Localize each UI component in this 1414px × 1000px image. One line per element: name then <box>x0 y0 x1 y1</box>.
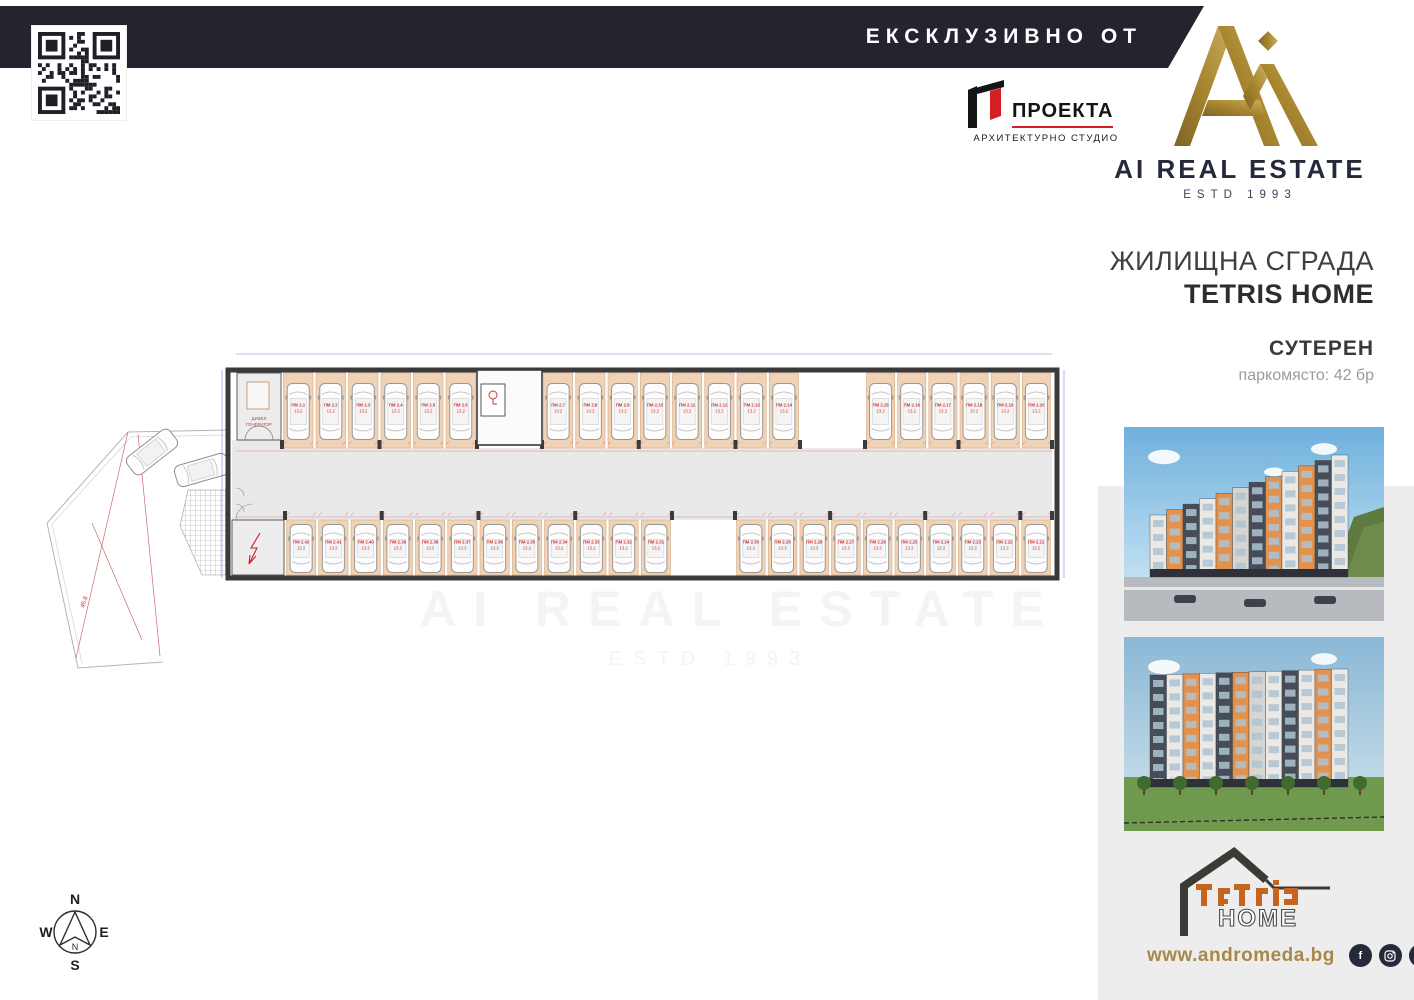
parking-space: ПМ 2.313.2 <box>349 373 379 448</box>
svg-text:13.2: 13.2 <box>652 546 661 551</box>
parking-space: ПМ 2.613.2 <box>446 373 476 448</box>
svg-text:13.2: 13.2 <box>523 546 532 551</box>
svg-text:ПМ 2.14: ПМ 2.14 <box>776 403 793 408</box>
parking-space: ПМ 2.3213.2 <box>609 513 638 576</box>
qr-code[interactable] <box>32 26 126 120</box>
svg-text:ПМ 2.22: ПМ 2.22 <box>996 540 1013 545</box>
svg-text:ПМ 2.38: ПМ 2.38 <box>422 540 439 545</box>
svg-text:13.2: 13.2 <box>969 546 978 551</box>
svg-text:ПМ 2.1: ПМ 2.1 <box>291 403 305 408</box>
parking-space: ПМ 2.1613.2 <box>898 373 926 448</box>
svg-text:13.2: 13.2 <box>458 546 467 551</box>
svg-text:13.2: 13.2 <box>939 409 948 414</box>
building-type: ЖИЛИЩНА СГРАДА <box>1110 246 1374 277</box>
architect-logo: ПРОЕКТА АРХИТЕКТУРНО СТУДИО <box>966 78 1126 144</box>
footer-links: www.andromeda.bg f in <box>1147 944 1387 967</box>
parking-space: ПМ 2.1213.2 <box>705 373 734 448</box>
parking-space: ПМ 2.3313.2 <box>573 511 606 575</box>
svg-text:13.2: 13.2 <box>618 409 627 414</box>
svg-text:ПМ 2.33: ПМ 2.33 <box>583 540 600 545</box>
parking-space: ПМ 2.1813.2 <box>957 373 989 449</box>
svg-text:ПМ 2.18: ПМ 2.18 <box>966 403 983 408</box>
stair-core <box>477 370 542 445</box>
parking-space: ПМ 2.213.2 <box>316 373 346 448</box>
tetris-letters <box>1196 880 1298 906</box>
svg-text:ПМ 2.16: ПМ 2.16 <box>904 403 921 408</box>
parking-space: ПМ 2.813.2 <box>576 373 605 448</box>
parking-space: ПМ 2.2113.2 <box>1018 511 1050 575</box>
svg-text:E: E <box>99 924 108 940</box>
svg-text:ПМ 2.17: ПМ 2.17 <box>935 403 952 408</box>
svg-text:13.2: 13.2 <box>587 546 596 551</box>
qr-code-icon <box>38 32 120 114</box>
svg-text:ПМ 2.9: ПМ 2.9 <box>616 403 630 408</box>
parking-space: ПМ 2.2013.2 <box>1022 373 1050 448</box>
svg-text:ПМ 2.15: ПМ 2.15 <box>872 403 889 408</box>
parking-space: ПМ 2.4213.2 <box>287 513 316 576</box>
svg-text:13.2: 13.2 <box>810 546 819 551</box>
svg-text:N: N <box>70 891 80 907</box>
svg-text:13.2: 13.2 <box>873 546 882 551</box>
svg-text:ПМ 2.13: ПМ 2.13 <box>744 403 761 408</box>
svg-text:ПМ 2.7: ПМ 2.7 <box>551 403 565 408</box>
svg-text:ПМ 2.23: ПМ 2.23 <box>965 540 982 545</box>
svg-text:13.2: 13.2 <box>780 409 789 414</box>
level-title: СУТЕРЕН паркомясто: 42 бр <box>1239 337 1374 385</box>
svg-text:13.2: 13.2 <box>1000 546 1009 551</box>
instagram-icon[interactable] <box>1379 944 1402 967</box>
tetris-home-word: HOME <box>1218 905 1298 932</box>
exclusive-label: ЕКСКЛУЗИВНО ОТ <box>866 25 1142 49</box>
parking-space: ПМ 2.3513.2 <box>512 513 541 576</box>
svg-text:13.2: 13.2 <box>876 409 885 414</box>
svg-text:13.2: 13.2 <box>619 546 628 551</box>
svg-text:ПМ 2.4: ПМ 2.4 <box>389 403 403 408</box>
svg-text:ПМ 2.10: ПМ 2.10 <box>647 403 664 408</box>
parking-space: ПМ 2.413.2 <box>378 373 411 449</box>
svg-text:ПМ 2.25: ПМ 2.25 <box>901 540 918 545</box>
parking-space: ПМ 2.4013.2 <box>351 513 380 576</box>
architect-name: ПРОЕКТА <box>1012 100 1113 128</box>
header-bar: ЕКСКЛУЗИВНО ОТ <box>0 6 1204 68</box>
svg-text:13.2: 13.2 <box>908 409 917 414</box>
parking-space: ПМ 2.3913.2 <box>380 511 413 575</box>
svg-text:ПМ 2.24: ПМ 2.24 <box>933 540 950 545</box>
generator-room: ДИЗЕЛГЕНЕРАТОР <box>237 373 281 440</box>
parking-space: ПМ 2.2613.2 <box>863 513 892 576</box>
svg-text:13.2: 13.2 <box>747 409 756 414</box>
compass-rose: N E S W N <box>36 890 114 974</box>
parking-space: ПМ 2.1413.2 <box>769 373 798 448</box>
svg-text:ПМ 2.30: ПМ 2.30 <box>743 540 760 545</box>
svg-text:13.2: 13.2 <box>1001 409 1010 414</box>
svg-text:ПМ 2.31: ПМ 2.31 <box>648 540 665 545</box>
brand-name: AI REAL ESTATE <box>1100 154 1380 185</box>
svg-text:ПМ 2.37: ПМ 2.37 <box>454 540 471 545</box>
facebook-icon[interactable]: f <box>1349 944 1372 967</box>
svg-text:13.2: 13.2 <box>937 546 946 551</box>
parking-space: ПМ 2.1713.2 <box>929 373 957 448</box>
svg-text:13.2: 13.2 <box>747 546 756 551</box>
svg-text:W: W <box>39 924 53 940</box>
svg-text:ДИЗЕЛ: ДИЗЕЛ <box>252 416 267 421</box>
svg-text:13.2: 13.2 <box>970 409 979 414</box>
level-name: СУТЕРЕН <box>1239 337 1374 361</box>
car-icon <box>124 427 180 478</box>
svg-text:13.2: 13.2 <box>1032 546 1041 551</box>
svg-text:ПМ 2.42: ПМ 2.42 <box>293 540 310 545</box>
parking-space: ПМ 2.3613.2 <box>477 511 510 575</box>
svg-text:13.2: 13.2 <box>329 546 338 551</box>
svg-text:13.2: 13.2 <box>457 409 466 414</box>
svg-text:ПМ 2.39: ПМ 2.39 <box>390 540 407 545</box>
svg-text:ПМ 2.36: ПМ 2.36 <box>487 540 504 545</box>
parking-space: ПМ 2.113.2 <box>284 373 314 448</box>
svg-text:ПМ 2.29: ПМ 2.29 <box>774 540 791 545</box>
svg-text:ПМ 2.21: ПМ 2.21 <box>1028 540 1045 545</box>
svg-text:13.2: 13.2 <box>361 546 370 551</box>
svg-text:ПМ 2.2: ПМ 2.2 <box>324 403 338 408</box>
site-outline: 45.8 <box>47 427 231 668</box>
svg-text:ПМ 2.20: ПМ 2.20 <box>1028 403 1045 408</box>
svg-text:ПМ 2.11: ПМ 2.11 <box>679 403 696 408</box>
svg-text:ПМ 2.28: ПМ 2.28 <box>806 540 823 545</box>
parking-space: ПМ 2.713.2 <box>544 373 573 448</box>
parking-space: ПМ 2.1013.2 <box>637 373 670 449</box>
svg-text:13.2: 13.2 <box>392 409 401 414</box>
website-link[interactable]: www.andromeda.bg <box>1147 945 1335 967</box>
parking-space: ПМ 2.1313.2 <box>734 373 767 449</box>
svg-text:ПМ 2.40: ПМ 2.40 <box>358 540 375 545</box>
svg-text:13.2: 13.2 <box>297 546 306 551</box>
parking-space: ПМ 2.2913.2 <box>768 513 797 576</box>
svg-text:ПМ 2.41: ПМ 2.41 <box>325 540 342 545</box>
building-render-day <box>1124 427 1384 621</box>
brand-estd: ESTD 1993 <box>1100 189 1380 201</box>
svg-text:13.2: 13.2 <box>490 546 499 551</box>
svg-text:13.2: 13.2 <box>842 546 851 551</box>
parking-space: ПМ 2.2413.2 <box>923 511 955 575</box>
parking-space: ПМ 2.3813.2 <box>416 513 445 576</box>
svg-text:13.2: 13.2 <box>359 409 368 414</box>
svg-text:ПМ 2.34: ПМ 2.34 <box>551 540 568 545</box>
svg-text:13.2: 13.2 <box>327 409 336 414</box>
svg-text:13.2: 13.2 <box>715 409 724 414</box>
parking-space: ПМ 2.2213.2 <box>990 513 1019 576</box>
svg-text:ПМ 2.5: ПМ 2.5 <box>421 403 435 408</box>
svg-text:N: N <box>72 942 79 952</box>
svg-text:13.2: 13.2 <box>555 546 564 551</box>
parking-space: ПМ 2.2313.2 <box>958 513 987 576</box>
parking-space: ПМ 2.2513.2 <box>895 513 924 576</box>
parking-space: ПМ 2.1113.2 <box>673 373 702 448</box>
svg-text:ПМ 2.6: ПМ 2.6 <box>454 403 468 408</box>
parking-space: ПМ 2.1513.2 <box>867 373 895 448</box>
svg-text:ПМ 2.12: ПМ 2.12 <box>711 403 728 408</box>
brand-logo-icon <box>1168 16 1320 152</box>
svg-text:13.2: 13.2 <box>394 546 403 551</box>
parking-space: ПМ 2.3113.2 <box>641 513 670 576</box>
svg-text:13.2: 13.2 <box>651 409 660 414</box>
parking-space: ПМ 2.3413.2 <box>545 513 574 576</box>
project-name: TETRIS HOME <box>1110 279 1374 310</box>
project-title: ЖИЛИЩНА СГРАДА TETRIS HOME <box>1110 246 1374 310</box>
svg-text:ПМ 2.27: ПМ 2.27 <box>838 540 855 545</box>
svg-text:ПМ 2.3: ПМ 2.3 <box>356 403 370 408</box>
svg-text:13.2: 13.2 <box>294 409 303 414</box>
tetris-home-logo: HOME <box>1170 840 1346 940</box>
svg-text:ПМ 2.19: ПМ 2.19 <box>997 403 1014 408</box>
parking-space: ПМ 2.2813.2 <box>800 513 829 576</box>
svg-text:13.2: 13.2 <box>683 409 692 414</box>
parking-space: ПМ 2.913.2 <box>608 373 637 448</box>
svg-text:45.8: 45.8 <box>80 595 90 609</box>
svg-text:13.2: 13.2 <box>905 546 914 551</box>
building-render-green <box>1124 637 1384 831</box>
svg-text:13.2: 13.2 <box>554 409 563 414</box>
brand-text: AI REAL ESTATE ESTD 1993 <box>1100 154 1380 201</box>
svg-text:13.2: 13.2 <box>1032 409 1041 414</box>
architect-subtitle: АРХИТЕКТУРНО СТУДИО <box>966 133 1126 144</box>
parking-count: паркомясто: 42 бр <box>1239 367 1374 385</box>
svg-text:ПМ 2.26: ПМ 2.26 <box>870 540 887 545</box>
parking-space: ПМ 2.513.2 <box>414 373 444 448</box>
svg-text:13.2: 13.2 <box>586 409 595 414</box>
svg-text:ПМ 2.35: ПМ 2.35 <box>519 540 536 545</box>
svg-text:ПМ 2.8: ПМ 2.8 <box>583 403 597 408</box>
svg-text:ПМ 2.32: ПМ 2.32 <box>616 540 633 545</box>
parking-space: ПМ 2.1913.2 <box>991 373 1019 448</box>
svg-text:S: S <box>70 957 79 973</box>
svg-text:13.2: 13.2 <box>424 409 433 414</box>
parking-space: ПМ 2.4113.2 <box>319 513 348 576</box>
floor-plan: 45.8ПМ 2.113.2ПМ 2.213.2ПМ 2.313.2ПМ 2.4… <box>40 340 1085 685</box>
svg-text:13.2: 13.2 <box>778 546 787 551</box>
parking-space: ПМ 2.2713.2 <box>828 511 860 575</box>
proekta-icon <box>966 78 1006 128</box>
parking-space: ПМ 2.3713.2 <box>448 513 477 576</box>
linkedin-icon[interactable]: in <box>1409 944 1414 967</box>
parking-space: ПМ 2.3013.2 <box>737 513 766 576</box>
svg-text:13.2: 13.2 <box>426 546 435 551</box>
flyer-page: AI REAL ESTATE ESTD 1993 ЕКСКЛУЗИВНО ОТ … <box>0 0 1414 1000</box>
